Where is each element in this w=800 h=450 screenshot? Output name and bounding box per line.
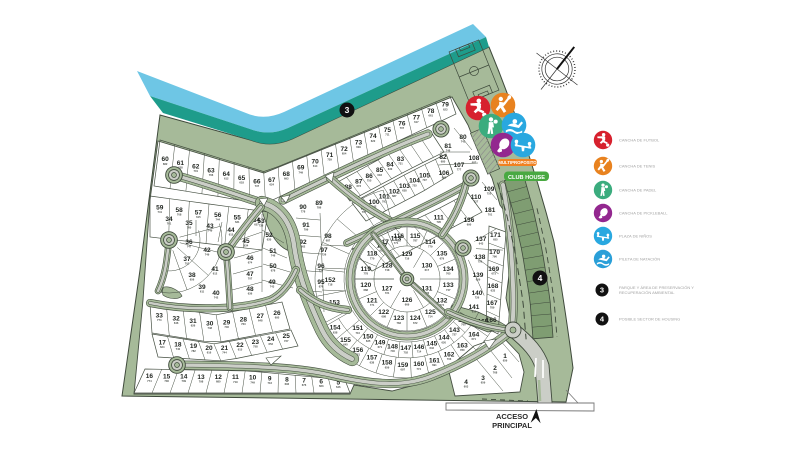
svg-text:782: 782 xyxy=(191,349,196,353)
svg-text:676: 676 xyxy=(319,285,324,289)
svg-text:727: 727 xyxy=(452,332,457,336)
svg-text:774: 774 xyxy=(157,318,162,322)
svg-text:630: 630 xyxy=(388,167,393,171)
svg-text:740: 740 xyxy=(176,347,181,351)
svg-text:771: 771 xyxy=(370,303,375,307)
svg-text:659: 659 xyxy=(481,381,486,385)
svg-text:623: 623 xyxy=(443,107,448,111)
svg-text:741: 741 xyxy=(157,210,162,214)
svg-text:691: 691 xyxy=(432,363,437,367)
svg-text:729: 729 xyxy=(327,158,332,162)
svg-text:707: 707 xyxy=(422,178,427,182)
svg-text:654: 654 xyxy=(342,151,347,155)
svg-text:700: 700 xyxy=(461,323,466,327)
svg-text:697: 697 xyxy=(401,368,406,372)
svg-text:749: 749 xyxy=(298,170,303,174)
svg-text:701: 701 xyxy=(193,169,198,173)
svg-text:746: 746 xyxy=(224,325,229,329)
svg-text:646: 646 xyxy=(174,321,179,325)
svg-text:636: 636 xyxy=(248,292,253,296)
svg-text:4: 4 xyxy=(538,273,543,283)
svg-text:765: 765 xyxy=(446,271,451,275)
svg-text:618: 618 xyxy=(377,173,382,177)
svg-text:687: 687 xyxy=(472,161,477,165)
svg-text:749: 749 xyxy=(250,380,255,384)
svg-text:626: 626 xyxy=(191,324,196,328)
svg-text:648: 648 xyxy=(258,319,263,323)
svg-text:3: 3 xyxy=(600,286,604,295)
svg-text:701: 701 xyxy=(185,262,190,266)
svg-text:710: 710 xyxy=(356,331,361,335)
svg-text:615: 615 xyxy=(238,348,243,352)
svg-text:POSIBLE SECTOR DE HOUSING: POSIBLE SECTOR DE HOUSING xyxy=(619,317,680,322)
svg-text:609: 609 xyxy=(356,145,361,149)
svg-text:777: 777 xyxy=(457,168,462,172)
svg-text:761: 761 xyxy=(167,222,172,226)
svg-text:795: 795 xyxy=(436,220,441,224)
svg-text:676: 676 xyxy=(302,383,307,387)
svg-text:671: 671 xyxy=(472,337,477,341)
svg-text:CANCHA DE TENIS: CANCHA DE TENIS xyxy=(619,164,655,169)
svg-text:659: 659 xyxy=(385,365,390,369)
svg-text:645: 645 xyxy=(343,343,348,347)
svg-text:746: 746 xyxy=(271,254,276,258)
svg-text:CANCHA DE PADEL: CANCHA DE PADEL xyxy=(619,188,657,193)
svg-text:633: 633 xyxy=(491,289,496,293)
svg-text:614: 614 xyxy=(313,164,318,168)
svg-text:678: 678 xyxy=(271,269,276,273)
svg-text:744: 744 xyxy=(216,218,221,222)
svg-text:744: 744 xyxy=(222,350,227,354)
svg-text:749: 749 xyxy=(208,229,213,233)
svg-text:799: 799 xyxy=(304,228,309,232)
svg-text:669: 669 xyxy=(405,303,410,307)
svg-text:707: 707 xyxy=(400,126,405,130)
svg-text:711: 711 xyxy=(385,133,390,137)
svg-text:789: 789 xyxy=(490,306,495,310)
svg-text:620: 620 xyxy=(442,340,447,344)
svg-text:763: 763 xyxy=(241,322,246,326)
svg-text:780: 780 xyxy=(460,348,465,352)
svg-text:786: 786 xyxy=(317,206,322,210)
svg-text:707: 707 xyxy=(248,277,253,281)
svg-text:RECUPERACIÓN AMBIENTAL: RECUPERACIÓN AMBIENTAL xyxy=(619,290,675,295)
svg-text:766: 766 xyxy=(209,173,214,177)
svg-text:635: 635 xyxy=(366,339,371,343)
svg-text:747: 747 xyxy=(187,245,192,249)
svg-text:774: 774 xyxy=(417,367,422,371)
svg-text:774: 774 xyxy=(147,379,152,383)
svg-text:779: 779 xyxy=(428,245,433,249)
svg-text:742: 742 xyxy=(214,296,219,300)
svg-text:603: 603 xyxy=(464,385,469,389)
svg-text:679: 679 xyxy=(440,256,445,260)
svg-text:749: 749 xyxy=(205,253,210,257)
svg-text:760: 760 xyxy=(187,226,192,230)
svg-text:671: 671 xyxy=(378,345,383,349)
svg-text:634: 634 xyxy=(244,244,249,248)
svg-text:MULTIPROPOSITO: MULTIPROPOSITO xyxy=(498,160,537,165)
svg-text:695: 695 xyxy=(275,316,280,320)
svg-text:731: 731 xyxy=(398,162,403,166)
svg-text:616: 616 xyxy=(207,351,212,355)
svg-text:689: 689 xyxy=(442,176,447,180)
svg-text:714: 714 xyxy=(417,350,422,354)
svg-text:622: 622 xyxy=(371,139,376,143)
svg-text:778: 778 xyxy=(364,271,369,275)
svg-text:673: 673 xyxy=(356,184,361,188)
svg-text:642: 642 xyxy=(430,346,435,350)
svg-text:706: 706 xyxy=(447,357,452,361)
svg-text:693: 693 xyxy=(284,177,289,181)
svg-text:652: 652 xyxy=(269,342,274,346)
svg-text:629: 629 xyxy=(476,278,481,282)
svg-text:688: 688 xyxy=(364,288,369,292)
svg-text:737: 737 xyxy=(255,184,260,188)
svg-text:758: 758 xyxy=(253,345,258,349)
svg-text:638: 638 xyxy=(333,330,338,334)
svg-text:698: 698 xyxy=(381,315,386,319)
svg-text:748: 748 xyxy=(208,326,213,330)
svg-text:709: 709 xyxy=(182,379,187,383)
svg-text:756: 756 xyxy=(478,260,483,264)
svg-text:716: 716 xyxy=(267,381,272,385)
svg-text:768: 768 xyxy=(493,371,498,375)
svg-text:770: 770 xyxy=(370,256,375,260)
svg-text:798: 798 xyxy=(199,379,204,383)
svg-text:778: 778 xyxy=(301,210,306,214)
svg-text:643: 643 xyxy=(479,242,484,246)
svg-text:714: 714 xyxy=(428,315,433,319)
svg-text:718: 718 xyxy=(328,283,333,287)
svg-text:PILETA DE NATACIÓN: PILETA DE NATACIÓN xyxy=(619,257,660,262)
svg-text:611: 611 xyxy=(200,290,205,294)
svg-text:617: 617 xyxy=(425,268,430,272)
svg-text:PLAZA DE NIÑOS: PLAZA DE NIÑOS xyxy=(619,234,652,239)
svg-text:725: 725 xyxy=(412,183,417,187)
svg-text:692: 692 xyxy=(285,382,290,386)
svg-text:615: 615 xyxy=(196,215,201,219)
svg-text:674: 674 xyxy=(248,261,253,265)
svg-text:787: 787 xyxy=(413,238,418,242)
svg-text:659: 659 xyxy=(503,359,508,363)
svg-text:672: 672 xyxy=(413,321,418,325)
svg-text:727: 727 xyxy=(284,339,289,343)
svg-text:680: 680 xyxy=(441,160,446,164)
svg-text:ACCESO: ACCESO xyxy=(496,412,528,421)
svg-text:PRINCIPAL: PRINCIPAL xyxy=(492,421,532,430)
svg-text:673: 673 xyxy=(491,272,496,276)
svg-text:687: 687 xyxy=(326,239,331,243)
svg-text:655: 655 xyxy=(493,238,498,242)
svg-text:615: 615 xyxy=(472,310,477,314)
svg-text:748: 748 xyxy=(385,268,390,272)
svg-text:615: 615 xyxy=(229,233,234,237)
svg-text:612: 612 xyxy=(224,177,229,181)
svg-text:702: 702 xyxy=(404,351,409,355)
svg-text:631: 631 xyxy=(235,220,240,224)
svg-text:624: 624 xyxy=(160,345,165,349)
svg-text:687: 687 xyxy=(392,194,397,198)
svg-text:726: 726 xyxy=(475,296,480,300)
svg-text:638: 638 xyxy=(370,360,375,364)
svg-text:796: 796 xyxy=(492,255,497,259)
svg-text:708: 708 xyxy=(177,213,182,217)
svg-text:752: 752 xyxy=(487,192,492,196)
svg-text:682: 682 xyxy=(163,162,168,166)
svg-text:690: 690 xyxy=(467,223,472,227)
svg-text:646: 646 xyxy=(336,385,341,389)
svg-text:656: 656 xyxy=(190,278,195,282)
svg-text:CANCHA DE PICKLEBALL: CANCHA DE PICKLEBALL xyxy=(619,211,668,216)
svg-text:615: 615 xyxy=(397,238,402,242)
svg-text:736: 736 xyxy=(164,379,169,383)
svg-text:3: 3 xyxy=(345,105,350,115)
svg-text:743: 743 xyxy=(270,285,275,289)
svg-text:719: 719 xyxy=(233,380,238,384)
svg-text:726: 726 xyxy=(322,253,327,257)
svg-text:CLUB HOUSE: CLUB HOUSE xyxy=(508,175,545,181)
svg-text:663: 663 xyxy=(319,384,324,388)
svg-text:617: 617 xyxy=(414,120,419,124)
svg-text:638: 638 xyxy=(402,189,407,193)
svg-text:701: 701 xyxy=(488,213,493,217)
svg-text:618: 618 xyxy=(239,180,244,184)
svg-text:738: 738 xyxy=(259,224,264,228)
svg-text:747: 747 xyxy=(446,288,451,292)
svg-text:680: 680 xyxy=(216,380,221,384)
svg-text:661: 661 xyxy=(429,114,434,118)
svg-text:755: 755 xyxy=(367,178,372,182)
svg-text:CANCHA DE FUTBOL: CANCHA DE FUTBOL xyxy=(619,138,660,143)
svg-text:783: 783 xyxy=(397,321,402,325)
svg-text:740: 740 xyxy=(390,349,395,353)
svg-text:630: 630 xyxy=(267,238,272,242)
svg-text:624: 624 xyxy=(269,183,274,187)
svg-text:612: 612 xyxy=(213,272,218,276)
svg-text:727: 727 xyxy=(474,200,479,204)
svg-text:721: 721 xyxy=(385,291,390,295)
svg-text:716: 716 xyxy=(405,257,410,261)
